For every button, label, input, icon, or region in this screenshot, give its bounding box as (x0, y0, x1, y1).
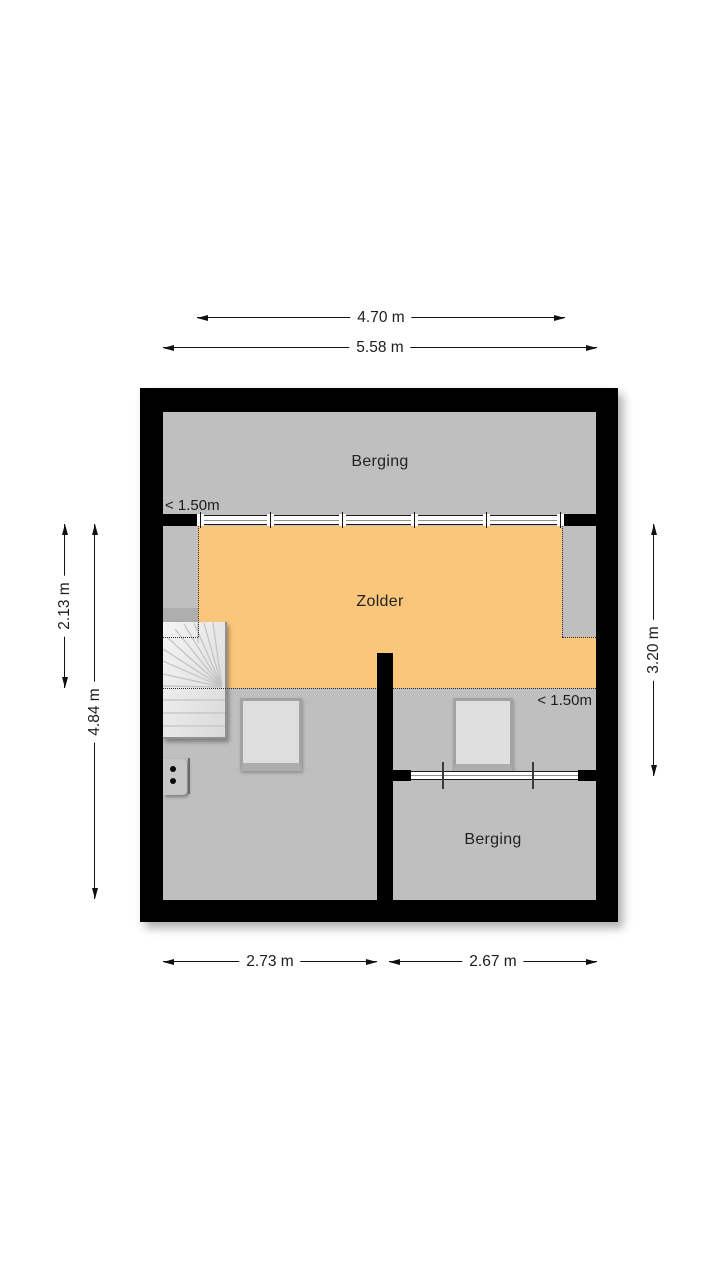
dimension-label: 3.20 m (644, 619, 664, 680)
dimension-label: 2.67 m (462, 952, 523, 972)
wall-stub-lower-right (578, 770, 596, 781)
mullion-tick (200, 512, 202, 528)
arrowhead-down-icon (651, 765, 657, 776)
room-label-zolder: Zolder (320, 594, 440, 610)
arrowhead-left-icon (163, 345, 174, 351)
arrowhead-left-icon (163, 959, 174, 965)
window-mullion (197, 514, 204, 526)
headroom-boundary-left (198, 526, 199, 637)
dimension-label: 2.73 m (239, 952, 300, 972)
arrowhead-up-icon (62, 524, 68, 535)
room-label-berging-top: Berging (320, 454, 440, 470)
headroom-boundary-right (562, 526, 563, 637)
wall-stub-lower-left (393, 770, 411, 781)
glazing-midline (411, 775, 578, 776)
mullion-tick (560, 512, 562, 528)
floor-plan: Berging Zolder Berging < 1.50m < 1.50m (140, 388, 618, 922)
window-mullion (557, 514, 564, 526)
arrowhead-right-icon (586, 345, 597, 351)
glazing-midline (197, 520, 564, 521)
arrowhead-up-icon (651, 524, 657, 535)
headroom-marker-bottom-right: < 1.50m (492, 693, 592, 708)
mullion-tick (270, 512, 272, 528)
window-mullion (339, 514, 346, 526)
arrowhead-right-icon (586, 959, 597, 965)
arrowhead-left-icon (389, 959, 400, 965)
power-outlet-icon (163, 759, 187, 795)
skylight-window (240, 698, 302, 771)
glazing-tick (532, 762, 534, 789)
lower-window-band (411, 771, 578, 780)
wall-stub-window-left (163, 514, 197, 526)
glazing-tick (442, 762, 444, 789)
dimension-label: 5.58 m (349, 338, 410, 358)
stairwell-void (163, 608, 198, 622)
arrowhead-down-icon (62, 677, 68, 688)
stair-treads (163, 622, 225, 737)
headroom-marker-top-left: < 1.50m (165, 498, 220, 513)
outlet-pin (170, 778, 176, 784)
floorplan-page: 4.70 m 5.58 m 2.13 m 4.84 m 3.20 m 2.73 … (0, 0, 720, 1280)
window-band (197, 515, 564, 525)
window-mullion (483, 514, 490, 526)
mullion-tick (486, 512, 488, 528)
outlet-switch-line (188, 758, 190, 794)
skylight-window (453, 698, 513, 772)
dimension-label: 4.70 m (350, 308, 411, 328)
staircase (163, 622, 227, 739)
dimension-label: 4.84 m (85, 681, 105, 742)
floor-area: Berging Zolder Berging < 1.50m < 1.50m (163, 412, 596, 900)
mullion-tick (414, 512, 416, 528)
window-mullion (267, 514, 274, 526)
headroom-boundary-right-corner (562, 637, 596, 638)
room-label-berging-bottom: Berging (433, 832, 553, 848)
interior-wall (377, 653, 393, 900)
arrowhead-left-icon (197, 315, 208, 321)
arrowhead-right-icon (554, 315, 565, 321)
arrowhead-down-icon (92, 888, 98, 899)
arrowhead-up-icon (92, 524, 98, 535)
outlet-pin (170, 766, 176, 772)
dimension-label: 2.13 m (55, 575, 75, 636)
mullion-tick (342, 512, 344, 528)
arrowhead-right-icon (366, 959, 377, 965)
window-mullion (411, 514, 418, 526)
headroom-boundary-left-corner (163, 637, 198, 638)
wall-stub-window-right (564, 514, 596, 526)
